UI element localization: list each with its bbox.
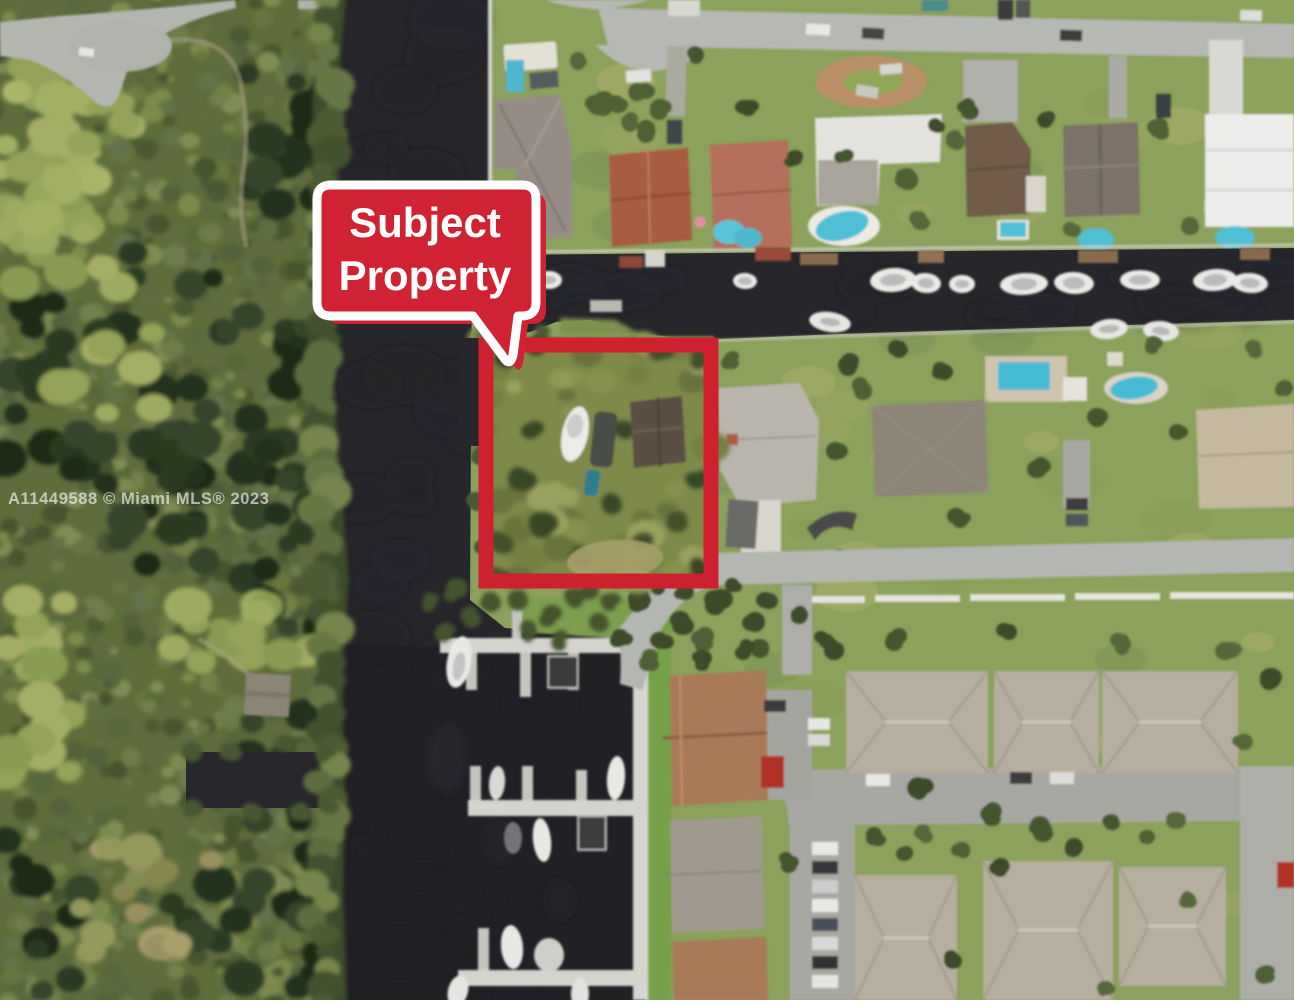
svg-text:Subject: Subject — [349, 199, 501, 246]
svg-text:Property: Property — [339, 252, 512, 299]
svg-text:A11449588 © Miami MLS® 2023: A11449588 © Miami MLS® 2023 — [8, 490, 270, 508]
